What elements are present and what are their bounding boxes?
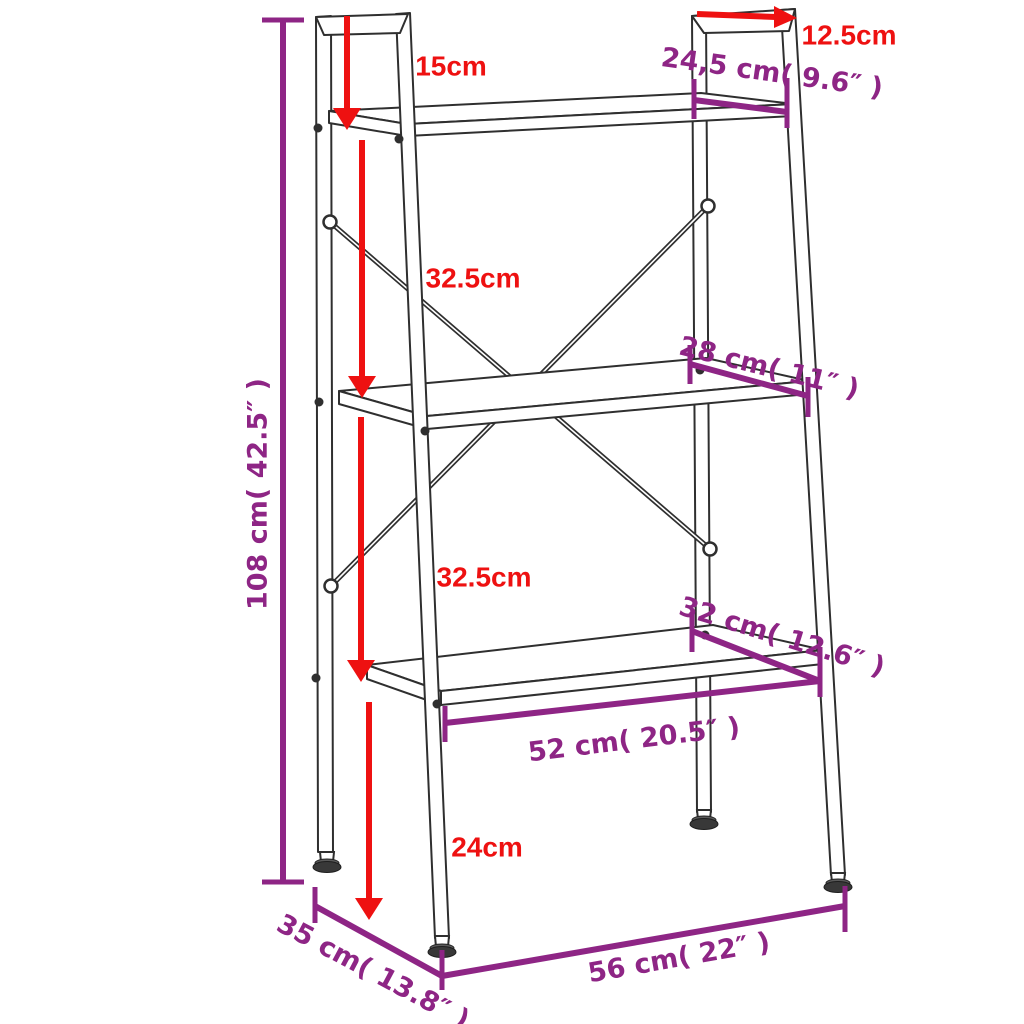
- back-left-leg: [316, 16, 333, 852]
- joint-dot: [433, 700, 442, 709]
- screw-icon: [704, 543, 717, 556]
- dim-label-leg-clearance-height: 24cm: [451, 832, 523, 863]
- joint-dot: [315, 398, 324, 407]
- screw-icon: [324, 216, 337, 229]
- shelf-structure: [312, 9, 853, 958]
- joint-dot: [312, 674, 321, 683]
- foot-back-left: [313, 852, 341, 873]
- dim-label-upper-shelf-gap: 32.5cm: [426, 263, 521, 294]
- left-frame-top-bar: [316, 14, 408, 35]
- dim-overall-height: 108 cm( 42.5″ ): [243, 20, 305, 882]
- dim-upper-shelf-gap: 32.5cm: [348, 140, 520, 398]
- dim-lower-shelf-gap: 32.5cm: [347, 417, 531, 682]
- joint-dot: [314, 124, 323, 133]
- screw-icon: [702, 200, 715, 213]
- dim-label-top-frame-depth: 12.5cm: [802, 20, 897, 51]
- dim-base-width: 56 cm( 22″ ): [442, 886, 845, 990]
- foot-front-right: [824, 873, 852, 893]
- dim-label-overall-height: 108 cm( 42.5″ ): [243, 378, 274, 610]
- joint-dot: [395, 135, 404, 144]
- front-right-leg: [781, 9, 845, 875]
- dim-label-top-frame-height: 15cm: [415, 51, 487, 82]
- foot-back-right: [690, 810, 718, 830]
- joint-dot: [421, 427, 430, 436]
- screw-icon: [325, 580, 338, 593]
- ladder-shelf-dimension-diagram: 108 cm( 42.5″ ) 24,5 cm( 9.6″ ) 28 cm( 1…: [0, 0, 1024, 1024]
- dim-label-lower-shelf-gap: 32.5cm: [437, 562, 532, 593]
- diagram-canvas: 108 cm( 42.5″ ) 24,5 cm( 9.6″ ) 28 cm( 1…: [0, 0, 1024, 1024]
- down-arrow-icon: [355, 898, 383, 920]
